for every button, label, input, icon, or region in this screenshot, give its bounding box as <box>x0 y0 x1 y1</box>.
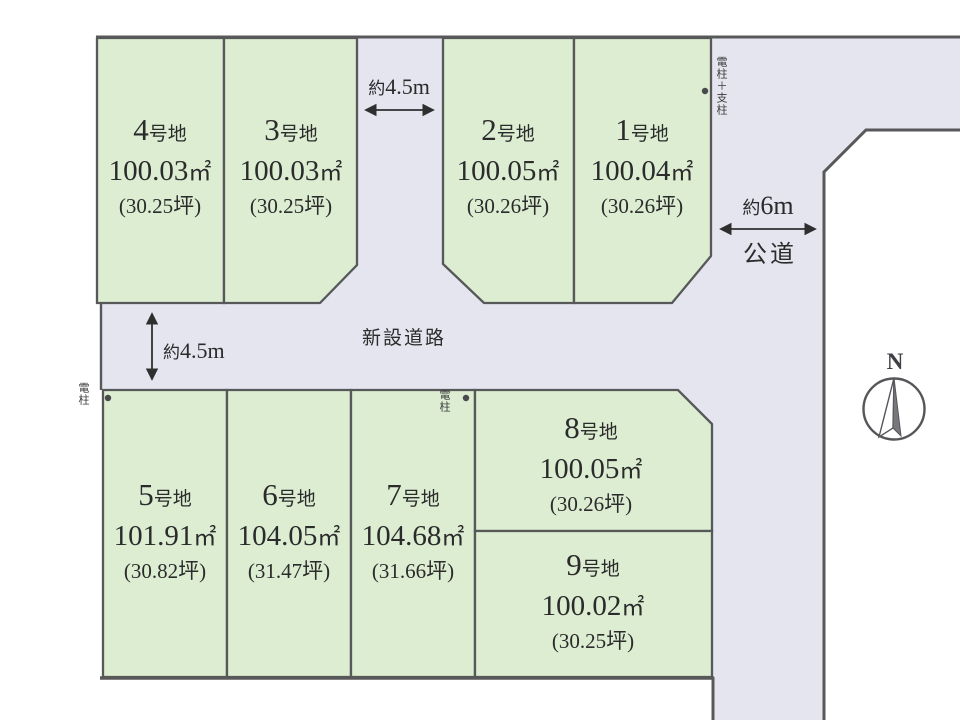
plot-1-area: 100.04㎡ <box>567 153 717 191</box>
pole-middle-label: 電柱 <box>437 389 450 413</box>
plot-2-name: 2号地 <box>433 112 583 153</box>
public-road-label: 公道 <box>743 234 797 269</box>
plot-3-name: 3号地 <box>216 112 366 153</box>
north-label: N <box>887 349 904 375</box>
plot-4-tsubo: (30.25坪) <box>85 191 235 221</box>
pole-dot-right <box>702 88 708 94</box>
plot-4-area: 100.03㎡ <box>85 153 235 191</box>
plot-2-label: 2号地 100.05㎡ (30.26坪) <box>433 112 583 221</box>
pole-dot-left <box>105 395 111 401</box>
plot-9-area: 100.02㎡ <box>483 588 703 626</box>
pole-left-label: 電柱 <box>76 382 89 406</box>
public-road-width-dimension: 約6m <box>742 191 793 221</box>
compass-needle-right <box>893 378 901 436</box>
plot-8-label: 8号地 100.05㎡ (30.26坪) <box>481 410 701 519</box>
plot-3-area: 100.03㎡ <box>216 153 366 191</box>
plot-8-area: 100.05㎡ <box>481 451 701 489</box>
new-road-label: 新設道路 <box>362 323 446 350</box>
plot-7-area: 104.68㎡ <box>338 518 488 556</box>
plot-9-name: 9号地 <box>483 547 703 588</box>
site-plan-drawing <box>0 0 960 720</box>
plot-7-name: 7号地 <box>338 477 488 518</box>
plot-7-label: 7号地 104.68㎡ (31.66坪) <box>338 477 488 586</box>
plot-3-label: 3号地 100.03㎡ (30.25坪) <box>216 112 366 221</box>
plot-8-name: 8号地 <box>481 410 701 451</box>
plot-7-tsubo: (31.66坪) <box>338 556 488 586</box>
plot-4-label: 4号地 100.03㎡ (30.25坪) <box>85 112 235 221</box>
plot-1-tsubo: (30.26坪) <box>567 191 717 221</box>
plot-1-name: 1号地 <box>567 112 717 153</box>
left-gap-dimension: 約4.5m <box>163 338 225 364</box>
compass-needle-left <box>879 378 894 437</box>
plot-2-tsubo: (30.26坪) <box>433 191 583 221</box>
plot-1-label: 1号地 100.04㎡ (30.26坪) <box>567 112 717 221</box>
plot-9-tsubo: (30.25坪) <box>483 626 703 656</box>
top-gap-dimension: 約4.5m <box>368 74 430 100</box>
plot-9-label: 9号地 100.02㎡ (30.25坪) <box>483 547 703 656</box>
land-plot-site-plan: 1号地 100.04㎡ (30.26坪) 2号地 100.05㎡ (30.26坪… <box>0 0 960 720</box>
plot-4-name: 4号地 <box>85 112 235 153</box>
pole-with-support-label: 電柱＋支柱 <box>714 56 727 116</box>
plot-2-area: 100.05㎡ <box>433 153 583 191</box>
plot-3-tsubo: (30.25坪) <box>216 191 366 221</box>
plot-8-tsubo: (30.26坪) <box>481 489 701 519</box>
north-compass <box>864 378 925 440</box>
pole-dot-middle <box>463 395 469 401</box>
